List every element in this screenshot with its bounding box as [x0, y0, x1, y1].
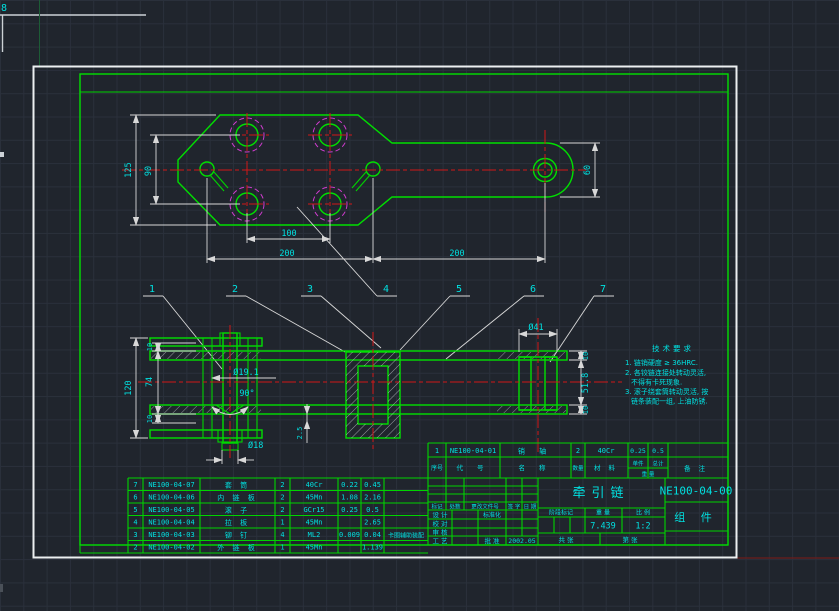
label-approve: 批 准 — [484, 536, 500, 545]
bom-unit-weight: 1.08 — [341, 494, 358, 502]
label-process: 工 艺 — [432, 537, 448, 545]
corner-glyph: 8 — [1, 3, 7, 14]
strip-header: 名 称 — [518, 463, 551, 472]
part-type: 组 件 — [674, 510, 718, 524]
strip-header: 总计 — [652, 460, 664, 468]
note-line: 不得有卡死现象. — [631, 378, 682, 387]
bom-name: 套 筒 — [225, 481, 250, 490]
bom-seq: 3 — [133, 531, 137, 539]
outer-plate-bottom — [150, 430, 262, 438]
outer-plate-top — [150, 338, 262, 346]
bom-material: 45Mn — [306, 519, 323, 527]
strip-unit-weight: 0.25 — [630, 447, 646, 455]
bom-code: NE100-04-02 — [148, 544, 194, 552]
label-scale: 比 例 — [636, 509, 650, 517]
bom-row: 7 NE100-04-07 套 筒 2 40Cr 0.22 0.45 — [133, 481, 381, 490]
top-view-dims: 125 90 100 200 200 60 — [124, 115, 600, 263]
drawing-id-area: NE100-04-00 组 件 — [660, 485, 733, 525]
bom-name: 铆 钉 — [225, 531, 250, 540]
dim-200-right: 200 — [449, 249, 464, 259]
label-count: 处数 — [449, 503, 461, 511]
dim-pin-dia: Ø18 — [248, 440, 263, 451]
strip-material: 40Cr — [598, 447, 615, 455]
balloon-4: 4 — [383, 284, 389, 295]
note-line: 2. 各铰链连接处转动灵活, — [625, 368, 706, 377]
strip-header: 材 料 — [594, 463, 618, 472]
note-line: 3. 滚子绕套筒转动灵活, 按 — [625, 387, 708, 396]
cad-workspace[interactable]: 8 — [0, 0, 839, 611]
bom-material: ML2 — [308, 531, 321, 539]
bom-unit-weight: 0.22 — [341, 481, 358, 489]
dim-125: 125 — [124, 162, 134, 177]
bom-row: 5 NE100-04-05 滚 子 2 GCr15 0.25 0.5 — [133, 506, 378, 515]
strip-code: NE100-04-01 — [450, 447, 496, 455]
dim-sleeve-od: Ø41 — [528, 322, 543, 333]
label-standardize: 标准化 — [483, 511, 501, 519]
bom-code: NE100-04-06 — [148, 494, 194, 502]
label-check: 校 对 — [432, 519, 448, 528]
balloon-7: 7 — [600, 284, 606, 295]
strip-header: 单件 — [632, 460, 644, 468]
dim-10-top: 10 — [146, 343, 154, 351]
dim-200-left: 200 — [279, 249, 294, 259]
dim-100: 100 — [281, 229, 296, 239]
label-design: 设 计 — [432, 510, 448, 519]
weight-value: 7.439 — [590, 522, 616, 532]
balloon-callouts: 1 2 3 4 5 6 7 — [143, 207, 614, 369]
bom-total-weight: 0.04 — [364, 531, 381, 539]
bom-unit-weight: 0.009 — [339, 531, 360, 539]
balloon-5: 5 — [456, 284, 462, 295]
bom-material: 40Cr — [306, 481, 323, 489]
label-mark: 标记 — [431, 503, 443, 511]
bom-total-weight: 2.16 — [364, 494, 381, 502]
label-stage: 阶段标记 — [549, 509, 573, 517]
note-line: 1. 链销硬度 ≥ 36HRC. — [625, 358, 698, 367]
bom-qty: 2 — [280, 494, 284, 502]
strip-headers: 序号 代 号 名 称 数量 材 料 单件 总计 重 量 备 注 — [431, 460, 708, 479]
dim-sleeve-len: 51.8 — [581, 373, 591, 393]
bom-seq: 2 — [133, 544, 137, 552]
dim-10-bottom: 10 — [146, 415, 154, 423]
bom-total-weight: 0.5 — [366, 506, 379, 514]
strip-header: 重 量 — [642, 470, 655, 478]
bom-name: 拉 板 — [225, 518, 250, 527]
drawing-title: 牵引链 — [572, 486, 629, 501]
note-line: 链条装配一组, 上油防锈. — [631, 397, 708, 406]
bom-table: 7 NE100-04-07 套 筒 2 40Cr 0.22 0.45 6 NE1… — [128, 478, 428, 553]
dim-120: 120 — [124, 380, 134, 395]
bom-unit-weight: 0.25 — [341, 506, 358, 514]
dim-sleeve-top: 10 — [582, 352, 590, 360]
strip-header: 备 注 — [684, 464, 708, 473]
dim-74: 74 — [145, 377, 155, 387]
balloon-3: 3 — [307, 284, 313, 295]
notes-title: 技术要求 — [652, 343, 694, 353]
strip-header: 代 号 — [456, 463, 489, 472]
bom-row: 3 NE100-04-03 铆 钉 4 ML2 0.009 0.04 卡圈辅助装… — [133, 531, 424, 540]
label-sign: 签 字 — [508, 503, 521, 511]
label-review: 审 核 — [432, 528, 448, 537]
bom-name: 内 链 板 — [217, 493, 257, 502]
bom-qty: 1 — [280, 544, 284, 552]
label-weight: 重 量 — [596, 509, 610, 517]
bom-material: 45Mn — [306, 544, 323, 552]
bom-qty: 2 — [280, 481, 284, 489]
bom-row: 6 NE100-04-06 内 链 板 2 45Mn 1.08 2.16 — [133, 493, 381, 502]
balloon-1: 1 — [149, 284, 155, 295]
bom-seq: 4 — [133, 519, 137, 527]
strip-row: 1 NE100-04-01 销 轴 2 40Cr 0.25 0.5 — [435, 447, 664, 456]
bom-note: 卡圈辅助装配 — [388, 532, 424, 540]
bom-code: NE100-04-05 — [148, 506, 194, 514]
bom-name: 外 链 板 — [217, 543, 257, 552]
bom-name: 滚 子 — [225, 506, 250, 515]
bom-qty: 1 — [280, 519, 284, 527]
top-view: 125 90 100 200 200 60 — [122, 113, 600, 263]
label-change-doc: 更改文件号 — [471, 503, 499, 511]
strip-seq: 1 — [435, 447, 439, 455]
centerlines — [122, 113, 586, 226]
label-date: 日 期 — [524, 504, 537, 511]
sheet-frame — [34, 67, 737, 558]
bom-total-weight: 1.139 — [362, 544, 383, 552]
label-sheet-no: 第 张 — [622, 535, 638, 544]
strip-total-weight: 0.5 — [652, 447, 664, 455]
bom-qty: 4 — [280, 531, 284, 539]
bom-total-weight: 2.65 — [364, 519, 381, 527]
bom-code: NE100-04-07 — [148, 481, 194, 489]
bom-qty: 2 — [280, 506, 284, 514]
bom-total-weight: 0.45 — [364, 481, 381, 489]
bom-seq: 5 — [133, 506, 137, 514]
bom-code: NE100-04-03 — [148, 531, 194, 539]
dim-gap: 2.5 — [296, 427, 304, 440]
bom-seq: 6 — [133, 494, 137, 502]
titleblock-date: 2002.05 — [508, 537, 535, 545]
scale-value: 1:2 — [635, 522, 650, 532]
bom-row: 4 NE100-04-04 拉 板 1 45Mn 2.65 — [133, 518, 381, 527]
dim-60: 60 — [583, 165, 593, 175]
tech-notes: 技术要求 1. 链销硬度 ≥ 36HRC. 2. 各铰链连接处转动灵活, 不得有… — [625, 343, 708, 406]
strip-qty: 2 — [576, 447, 580, 455]
drawing-canvas: 8 — [0, 0, 839, 611]
inner-frame — [80, 74, 728, 545]
strip-header: 序号 — [431, 464, 443, 472]
title-block: 1 NE100-04-01 销 轴 2 40Cr 0.25 0.5 序号 代 号… — [428, 443, 732, 545]
balloon-2: 2 — [232, 284, 238, 295]
dim-hole-dia: Ø19.1 — [233, 367, 259, 378]
drawing-number: NE100-04-00 — [660, 485, 733, 498]
signature-block: 标记 处数 更改文件号 签 字 日 期 设 计 校 对 审 核 工 艺 标准化 … — [431, 503, 536, 546]
balloon-6: 6 — [530, 284, 536, 295]
dim-90: 90 — [144, 166, 154, 176]
bom-seq: 7 — [133, 481, 137, 489]
bom-material: 45Mn — [306, 494, 323, 502]
label-sheets-total: 共 张 — [558, 535, 574, 544]
bom-material: GCr15 — [303, 506, 324, 514]
bom-code: NE100-04-04 — [148, 519, 194, 527]
outer-border — [34, 67, 737, 558]
strip-name: 销 轴 — [518, 447, 552, 456]
dim-sleeve-bottom: 10 — [582, 406, 590, 414]
strip-header: 数量 — [572, 464, 584, 472]
dim-angle: 90° — [239, 389, 254, 399]
